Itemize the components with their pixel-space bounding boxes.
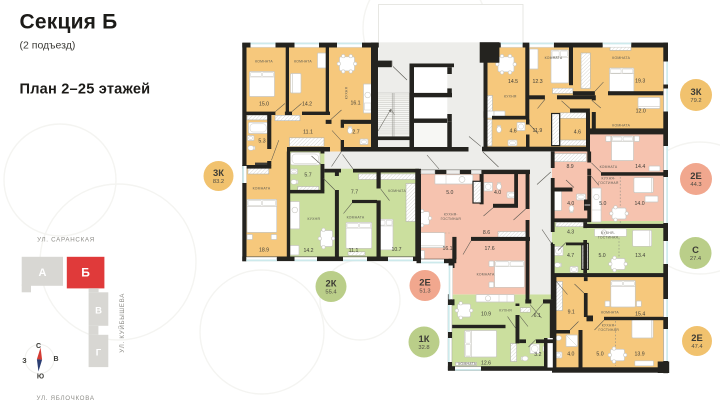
svg-text:КУХНЯ-: КУХНЯ- <box>601 231 615 235</box>
svg-text:4.6: 4.6 <box>574 129 581 135</box>
svg-text:2Е: 2Е <box>419 276 430 287</box>
svg-text:2К: 2К <box>326 277 337 288</box>
svg-text:9.1: 9.1 <box>568 310 575 316</box>
svg-text:УЛ. САРАНСКАЯ: УЛ. САРАНСКАЯ <box>37 237 95 244</box>
svg-text:4.0: 4.0 <box>567 201 574 207</box>
svg-text:10.9: 10.9 <box>481 312 491 318</box>
svg-text:51.3: 51.3 <box>419 289 430 295</box>
svg-text:4.7: 4.7 <box>567 253 574 259</box>
svg-text:14.5: 14.5 <box>508 79 518 85</box>
svg-text:2.7: 2.7 <box>352 130 359 136</box>
svg-text:13.4: 13.4 <box>635 253 645 259</box>
svg-text:КУХНЯ: КУХНЯ <box>308 217 321 221</box>
svg-text:44.3: 44.3 <box>690 182 701 188</box>
svg-text:А: А <box>39 267 47 279</box>
svg-text:12.6: 12.6 <box>481 361 491 367</box>
svg-text:КОМНАТА: КОМНАТА <box>600 165 618 169</box>
svg-text:12.3: 12.3 <box>533 79 543 85</box>
svg-text:КУХНЯ-: КУХНЯ- <box>602 177 616 181</box>
svg-text:3К: 3К <box>213 167 224 178</box>
svg-text:КУХНЯ: КУХНЯ <box>499 309 512 313</box>
svg-text:КОМНАТА: КОМНАТА <box>255 60 273 64</box>
svg-text:6.1: 6.1 <box>534 313 541 319</box>
svg-text:2Е: 2Е <box>691 332 702 343</box>
svg-text:4.0: 4.0 <box>567 352 574 358</box>
svg-text:5.3: 5.3 <box>258 139 265 145</box>
svg-text:В: В <box>95 305 102 316</box>
svg-text:8.6: 8.6 <box>483 230 490 236</box>
svg-text:12.0: 12.0 <box>636 109 646 115</box>
svg-text:13.9: 13.9 <box>635 352 645 358</box>
svg-text:3.2: 3.2 <box>534 352 541 358</box>
svg-text:79.2: 79.2 <box>690 98 701 104</box>
svg-text:ГОСТИНАЯ: ГОСТИНАЯ <box>598 181 619 185</box>
svg-text:(2 подъезд): (2 подъезд) <box>20 40 76 52</box>
svg-text:5.0: 5.0 <box>446 190 453 196</box>
svg-text:КОМНАТА: КОМНАТА <box>388 189 406 193</box>
svg-text:16.1: 16.1 <box>350 101 360 107</box>
svg-text:83.2: 83.2 <box>213 179 224 185</box>
svg-text:5.7: 5.7 <box>304 173 311 179</box>
svg-text:КУХНЯ-: КУХНЯ- <box>444 212 458 216</box>
svg-text:47.4: 47.4 <box>691 344 703 350</box>
svg-text:Г: Г <box>96 347 102 358</box>
svg-text:УЛ. КУЙБЫШЕВА: УЛ. КУЙБЫШЕВА <box>118 293 126 353</box>
svg-text:10.7: 10.7 <box>391 247 401 253</box>
svg-text:7.7: 7.7 <box>351 190 358 196</box>
svg-text:11.1: 11.1 <box>349 248 359 254</box>
svg-text:Б: Б <box>81 265 90 279</box>
svg-text:11.9: 11.9 <box>533 128 543 134</box>
svg-text:19.3: 19.3 <box>635 79 645 85</box>
svg-text:55.4: 55.4 <box>325 290 337 296</box>
svg-text:14.4: 14.4 <box>635 164 645 170</box>
svg-text:15.4: 15.4 <box>635 312 645 318</box>
svg-text:27.4: 27.4 <box>690 256 702 262</box>
svg-text:2Е: 2Е <box>690 170 701 181</box>
svg-text:16.1: 16.1 <box>442 246 452 252</box>
svg-text:КОМНАТА: КОМНАТА <box>294 60 312 64</box>
svg-text:14.2: 14.2 <box>303 248 313 254</box>
svg-text:КОМНАТА: КОМНАТА <box>601 311 619 315</box>
svg-text:ГОСТИНАЯ: ГОСТИНАЯ <box>441 217 462 221</box>
svg-text:5.0: 5.0 <box>596 352 603 358</box>
svg-text:КОМНАТА: КОМНАТА <box>612 123 630 127</box>
svg-text:4.6: 4.6 <box>509 129 516 135</box>
svg-text:КОМНАТА: КОМНАТА <box>253 187 271 191</box>
svg-text:УЛ. ЯБЛОЧКОВА: УЛ. ЯБЛОЧКОВА <box>37 395 95 402</box>
svg-text:1К: 1К <box>419 333 430 344</box>
svg-text:КОМНАТА: КОМНАТА <box>458 362 476 366</box>
svg-text:З: З <box>22 358 27 365</box>
svg-text:Ю: Ю <box>37 374 44 381</box>
svg-text:14.0: 14.0 <box>635 201 645 207</box>
svg-text:17.6: 17.6 <box>485 246 495 252</box>
svg-text:КУХНЯ: КУХНЯ <box>345 86 349 99</box>
svg-text:18.9: 18.9 <box>259 248 269 254</box>
svg-text:ГОСТИНАЯ: ГОСТИНАЯ <box>599 328 620 332</box>
svg-text:3К: 3К <box>691 86 702 97</box>
svg-text:С: С <box>692 244 699 255</box>
svg-text:15.0: 15.0 <box>259 102 269 108</box>
svg-text:КУХНЯ-: КУХНЯ- <box>602 323 616 327</box>
svg-text:Секция Б: Секция Б <box>20 11 118 34</box>
svg-text:14.2: 14.2 <box>302 102 312 108</box>
svg-text:КОМНАТА: КОМНАТА <box>612 56 630 60</box>
svg-text:КОМНАТА: КОМНАТА <box>545 56 563 60</box>
svg-text:8.9: 8.9 <box>566 164 573 170</box>
svg-text:КОМНАТА: КОМНАТА <box>477 273 495 277</box>
svg-text:5.0: 5.0 <box>599 201 606 207</box>
svg-text:11.1: 11.1 <box>303 130 313 136</box>
svg-text:32.8: 32.8 <box>418 345 429 351</box>
svg-text:КУХНЯ: КУХНЯ <box>504 95 517 99</box>
svg-text:ГОСТИНАЯ: ГОСТИНАЯ <box>598 236 619 240</box>
svg-text:В: В <box>53 356 58 363</box>
svg-text:4.3: 4.3 <box>567 230 574 236</box>
svg-text:КОМНАТА: КОМНАТА <box>347 215 365 219</box>
svg-text:План 2–25 этажей: План 2–25 этажей <box>20 82 151 98</box>
svg-text:4.0: 4.0 <box>494 190 501 196</box>
svg-text:5.0: 5.0 <box>598 253 605 259</box>
